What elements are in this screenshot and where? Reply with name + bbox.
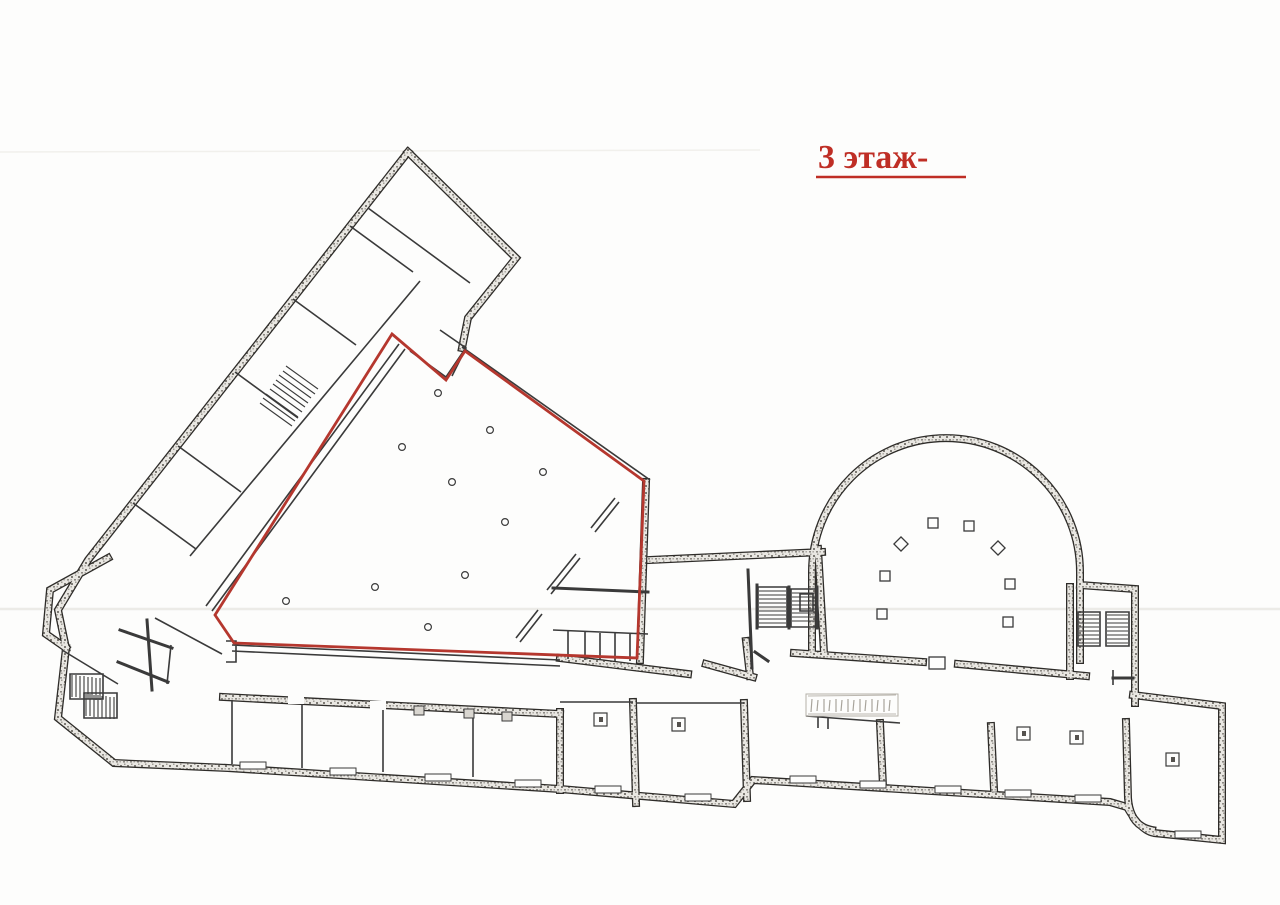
faded-stamp: [806, 694, 898, 716]
scanned-floor-plan-page: 3 этаж-: [0, 0, 1280, 905]
column-markers: [283, 390, 547, 631]
outer-walls: [46, 152, 1222, 840]
dome-column-markers: [877, 518, 1015, 669]
floor-plan-drawing: 3 этаж-: [0, 0, 1280, 905]
scan-artifact-lines: [0, 150, 1280, 609]
partition-walls-medium: [118, 570, 1133, 690]
window-openings: [240, 695, 1201, 838]
shaft-markers: [594, 713, 1179, 766]
partition-walls-thin: [62, 208, 1129, 777]
page-title: 3 этаж-: [818, 139, 928, 176]
floor-title: 3 этаж-: [816, 139, 966, 177]
